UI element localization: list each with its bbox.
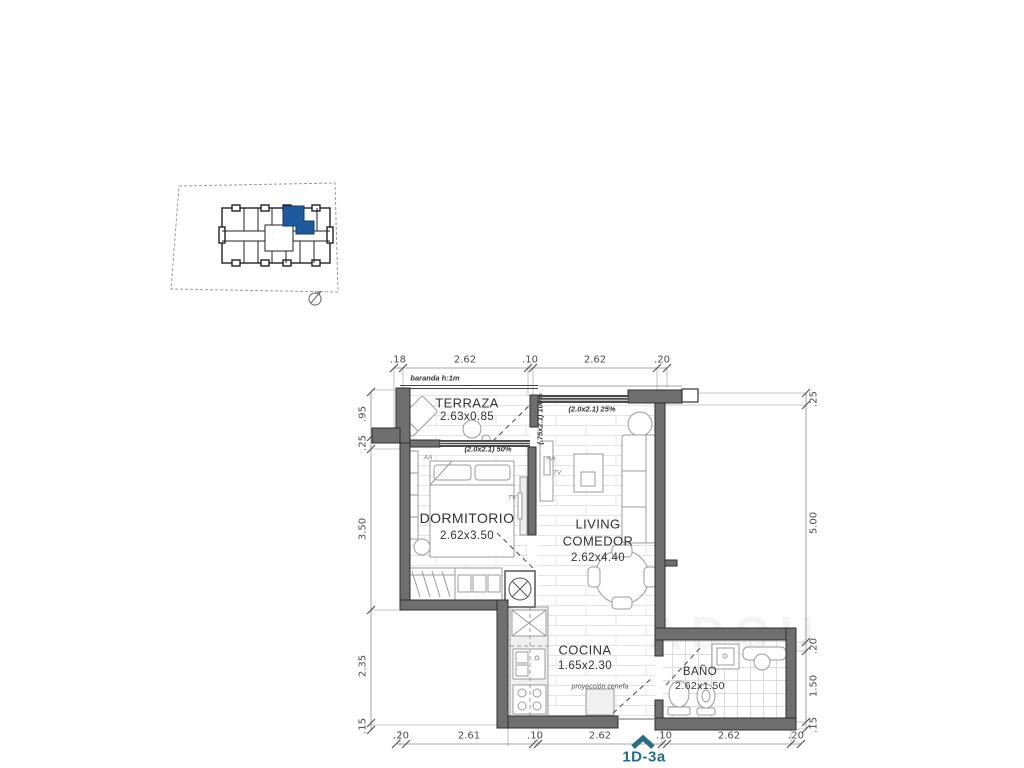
dim-right-3: 1.50 <box>809 675 820 697</box>
terrace-railing <box>400 386 682 389</box>
room-dims-terraza: 2.63x0.85 <box>440 411 494 423</box>
pouf <box>628 412 652 436</box>
dim-left-3: 2.35 <box>358 655 369 677</box>
dim-top-2: .10 <box>522 355 538 366</box>
site-key-plan <box>165 175 345 315</box>
anno-door-terraza: (.75x2.1) 100% <box>536 393 545 444</box>
unit-id-label: 1D-3a <box>622 749 665 766</box>
dim-top-0: .18 <box>390 355 406 366</box>
living-window <box>538 395 628 403</box>
anno-cenefa: proyección cenefa <box>572 684 629 691</box>
dim-right-1: 5.00 <box>809 512 820 534</box>
dim-bottom-6: .20 <box>788 731 804 742</box>
kitchen-cabinet <box>586 689 614 715</box>
dim-left-1: .25 <box>358 435 369 451</box>
anno-window-living: (2.0x2.1) 25% <box>568 405 615 414</box>
pillar <box>682 389 698 402</box>
anno-ac-dorm: AA <box>424 455 433 462</box>
floor-plan: TERRAZA 2.63x0.85 DORMITORIO 2.62x3.50 L… <box>360 355 820 768</box>
dim-right-4: .15 <box>809 717 820 733</box>
living-tv-unit <box>540 441 553 501</box>
dim-top-1: 2.62 <box>454 355 476 366</box>
anno-baranda: baranda h:1m <box>410 374 459 383</box>
dim-bottom-5: 2.62 <box>718 731 740 742</box>
room-dims-living: 2.62x4.40 <box>571 552 625 564</box>
dim-left-0: .95 <box>358 406 369 422</box>
dim-bottom-1: 2.61 <box>458 731 480 742</box>
room-label-bano: BAÑO <box>683 666 717 678</box>
dim-right-0: .25 <box>809 391 820 407</box>
dim-left-2: 3.50 <box>358 518 369 540</box>
dim-bottom-2: .10 <box>527 731 543 742</box>
room-dims-bano: 2.62x1.50 <box>675 680 725 692</box>
dim-bottom-0: .20 <box>393 731 409 742</box>
room-label-cocina: COCINA <box>559 643 612 658</box>
bedside-table <box>414 539 430 555</box>
entry-arrow-icon <box>633 738 653 747</box>
dim-bottom-3: 2.62 <box>589 731 611 742</box>
bed <box>430 461 514 557</box>
room-label-dormitorio: DORMITORIO <box>420 510 515 526</box>
room-label-terraza: TERRAZA <box>435 396 498 411</box>
anno-tv-dorm: TV <box>508 495 516 502</box>
north-indicator-icon <box>309 291 321 305</box>
anno-window-dorm: (2.0x2.1) 50% <box>464 445 511 454</box>
dim-top-3: 2.62 <box>584 355 606 366</box>
room-dims-cocina: 1.65x2.30 <box>558 660 612 672</box>
room-label-comedor: COMEDOR <box>563 534 634 549</box>
floorplan-page: ADQU <box>0 0 1024 768</box>
room-dims-dormitorio: 2.62x3.50 <box>440 530 494 542</box>
dim-left-4: .15 <box>358 718 369 734</box>
sofa <box>622 435 656 543</box>
dim-bottom-4: .10 <box>656 731 672 742</box>
ventilation-duct <box>505 571 535 607</box>
coffee-table <box>574 454 603 492</box>
closet <box>405 568 502 600</box>
anno-tv-living: TV <box>553 470 561 477</box>
kitchen-counter <box>510 607 548 717</box>
anno-ac-living: AA <box>547 456 556 463</box>
dim-right-2: .20 <box>809 638 820 654</box>
dim-top-4: .20 <box>654 355 670 366</box>
room-label-living: LIVING <box>575 517 620 532</box>
